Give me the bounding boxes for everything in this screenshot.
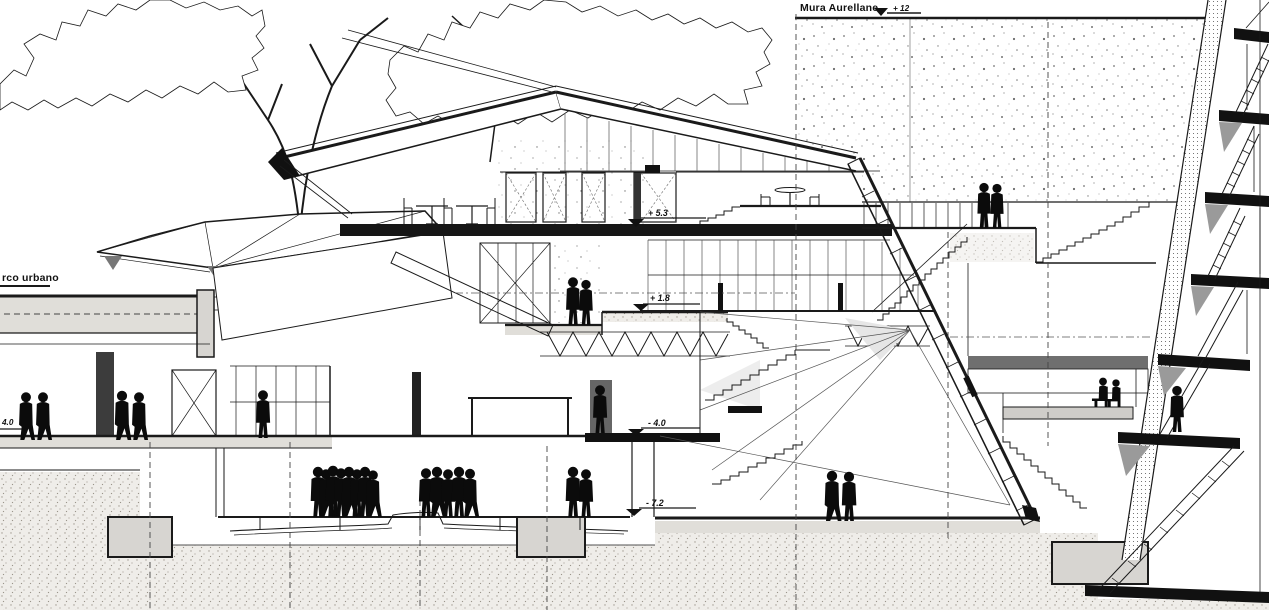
elevation-text: + 1.8 [650, 293, 670, 303]
minus4-floor-slab [585, 433, 720, 442]
stair-flight [712, 441, 802, 484]
person-silhouette [825, 471, 842, 521]
person-silhouette [566, 467, 581, 517]
person-silhouette [19, 392, 35, 440]
person-silhouette [1170, 386, 1184, 432]
wedge [1205, 204, 1228, 234]
elevation-marker-minus72: - 7.2 [626, 498, 696, 516]
elevation-text: - 4.0 [648, 418, 666, 428]
column [412, 372, 421, 436]
bench [728, 406, 762, 413]
lintel [645, 165, 660, 173]
hatched-band [968, 369, 1148, 393]
dining-furniture [761, 188, 819, 207]
left-wing [0, 211, 585, 517]
landing [1234, 28, 1269, 43]
table [456, 206, 488, 224]
facet [700, 360, 760, 410]
wedge [1219, 122, 1242, 152]
ground-hatch [655, 533, 1098, 610]
concrete-wall [494, 140, 646, 224]
stair-railing [872, 224, 967, 312]
foundation-block [108, 517, 172, 557]
ledge-slab [1003, 407, 1133, 419]
elevation-text: 4.0 [1, 418, 14, 427]
section-canvas: Mura Aurellane + 12 rco urbano + 5.3 + 1… [0, 0, 1269, 610]
door-leaf [96, 352, 114, 436]
basement-wall [216, 448, 224, 517]
walkway-underside [968, 356, 1148, 369]
stair-to-wall-top [1035, 202, 1149, 262]
walkway-slab [602, 312, 728, 322]
right-lower-rooms [950, 263, 1150, 508]
foundation-block [517, 517, 585, 557]
small-stair [700, 207, 740, 224]
level-triangle-icon [626, 509, 642, 516]
park-slab [0, 296, 212, 333]
person-silhouette [366, 470, 382, 517]
chair [444, 198, 452, 224]
chair [761, 194, 770, 206]
wedge [1191, 286, 1214, 316]
stair-to-lower-level [1003, 436, 1087, 508]
person-silhouette [132, 392, 148, 440]
park-label: rco urbano [2, 272, 59, 284]
person-silhouette [36, 392, 52, 440]
architectural-section-drawing: Mura Aurellane + 12 rco urbano + 5.3 + 1… [0, 0, 1269, 610]
portal-frame [468, 398, 572, 436]
chair [487, 198, 495, 224]
person-silhouette [115, 391, 131, 440]
walkway-slab [505, 325, 602, 335]
left-park-structure [0, 290, 224, 357]
chair [810, 194, 819, 206]
wall-label: Mura Aurellane [800, 2, 878, 14]
person-silhouette [256, 390, 270, 438]
ground-and-excavation [0, 442, 1269, 610]
wall-terrace [862, 202, 1156, 320]
mezzanine-slab [340, 224, 892, 236]
seated-person-silhouette [1092, 378, 1108, 407]
post [838, 283, 843, 311]
elevation-marker-plus12: + 12 [874, 4, 921, 16]
post [718, 283, 723, 311]
elevation-text: + 5.3 [648, 208, 668, 218]
slab-end-block [197, 290, 214, 357]
level-triangle-icon [633, 304, 649, 311]
round-table [775, 188, 805, 193]
canopy-drip-tip [104, 256, 122, 270]
person-silhouette [463, 469, 479, 517]
ground-patch [950, 233, 1034, 262]
aurelian-wall [795, 18, 1206, 202]
person-silhouette [579, 469, 593, 517]
truss-zigzag [547, 332, 728, 356]
stair-flight [727, 318, 769, 348]
person-silhouette [842, 472, 857, 521]
elevation-marker-plus18: + 1.8 [633, 293, 700, 311]
elevation-text: - 7.2 [646, 498, 664, 508]
elevation-text: + 12 [893, 4, 910, 13]
